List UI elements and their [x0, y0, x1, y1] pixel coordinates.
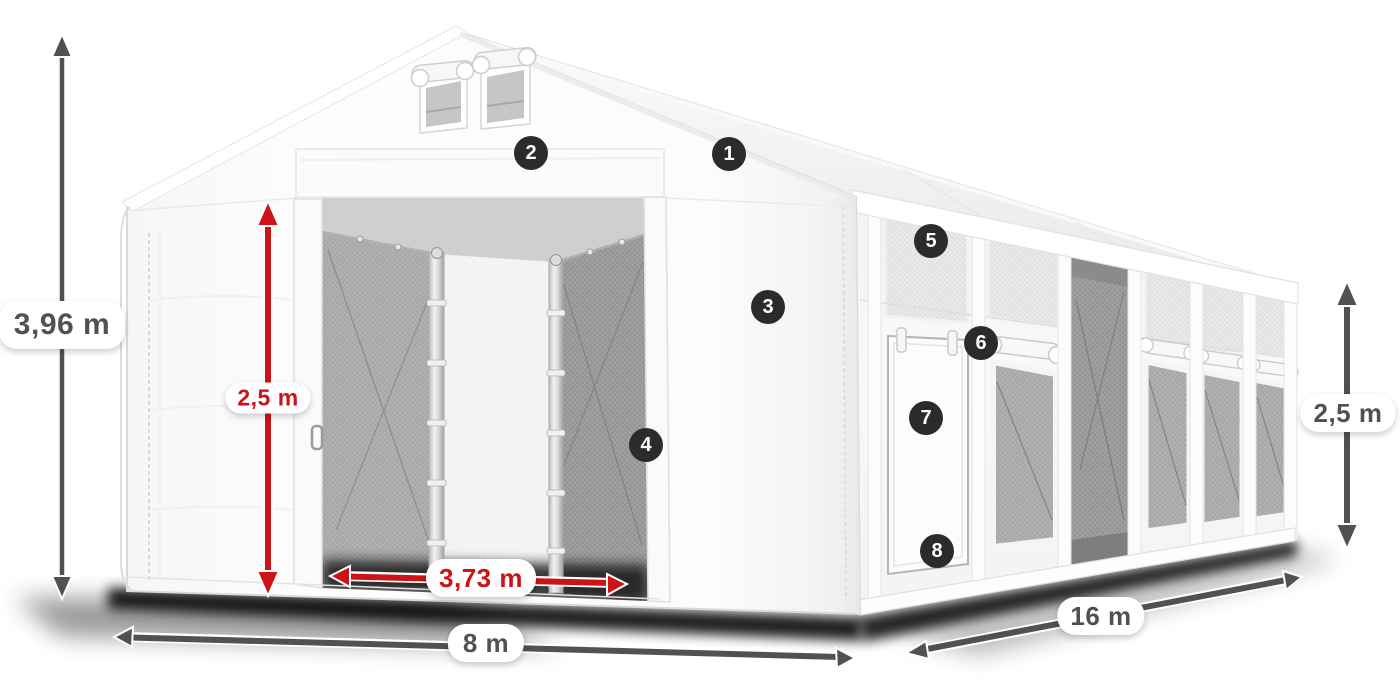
roof-vent-2 [473, 47, 537, 129]
tent-illustration [0, 0, 1400, 700]
dim-label-door-width: 3,73 m [426, 559, 536, 597]
callout-badge-7: 7 [909, 401, 943, 435]
side-open-section [1071, 250, 1128, 578]
interior-see-through-gap [436, 254, 556, 592]
dim-label-front-width: 8 m [448, 624, 524, 662]
callout-badge-6: 6 [964, 326, 998, 360]
callout-badge-5: 5 [914, 224, 948, 258]
gate-pole-left [427, 248, 446, 589]
dim-label-left-side-height: 2,5 m [225, 383, 310, 414]
interior-left-mesh-wall [322, 232, 436, 589]
callout-badge-8: 8 [920, 534, 954, 568]
gate-header-beam [296, 149, 664, 197]
gate-pole-right [547, 255, 565, 594]
gate-right-jamb [644, 197, 670, 602]
callout-badge-2: 2 [514, 136, 548, 170]
callout-badge-1: 1 [712, 137, 746, 171]
callout-badge-3: 3 [751, 290, 785, 324]
interior-right-mesh-wall [556, 235, 649, 604]
dim-label-total-height: 3,96 m [0, 301, 125, 349]
front-right-corner-shade [790, 197, 860, 614]
roof-vent-1 [411, 60, 474, 133]
dim-label-side-length: 16 m [1057, 597, 1144, 635]
tent-dimension-diagram: 3,96 m 2,5 m 3,73 m 8 m 16 m 2,5 m 1 2 3… [0, 0, 1400, 700]
dim-label-right-side-height: 2,5 m [1301, 394, 1396, 432]
callout-badge-4: 4 [629, 428, 663, 462]
door-hanger-tab [948, 331, 957, 355]
door-hanger-tab [897, 328, 906, 352]
gate-opening-interior [322, 197, 652, 607]
tent-front-gable [121, 26, 860, 614]
